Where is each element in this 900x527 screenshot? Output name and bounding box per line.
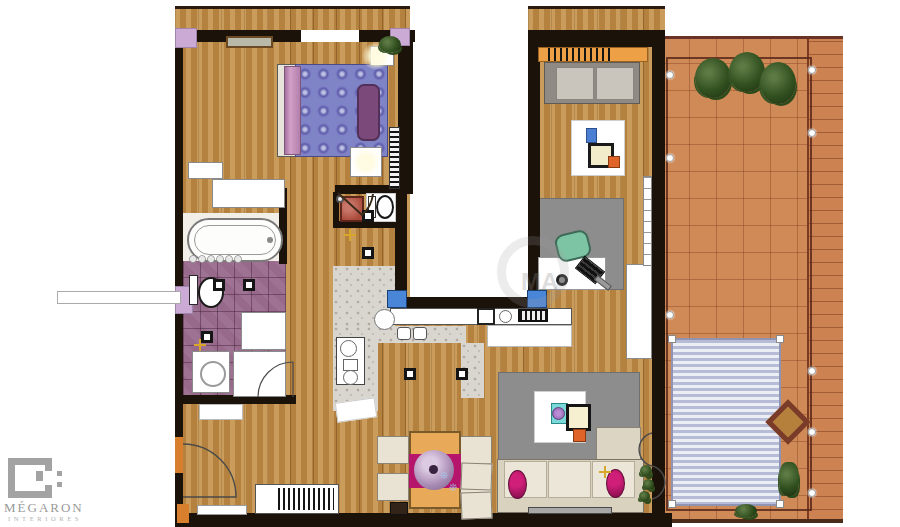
brand-tagline: INTERIORES [8,515,118,522]
logo-dot-icon [57,471,62,476]
brand-block: MÉGARON INTERIORES [0,440,120,527]
watermark-text: MA [521,268,558,296]
logo-mark-icon [45,485,52,498]
floor-plan-canvas: ❊ ❊ MA [0,0,900,527]
logo-mark-icon [36,471,43,481]
brand-name: MÉGARON [4,500,114,516]
logo-mark-icon [45,458,52,471]
logo-dot-icon [57,482,62,487]
door-swing-overlay [0,0,900,527]
